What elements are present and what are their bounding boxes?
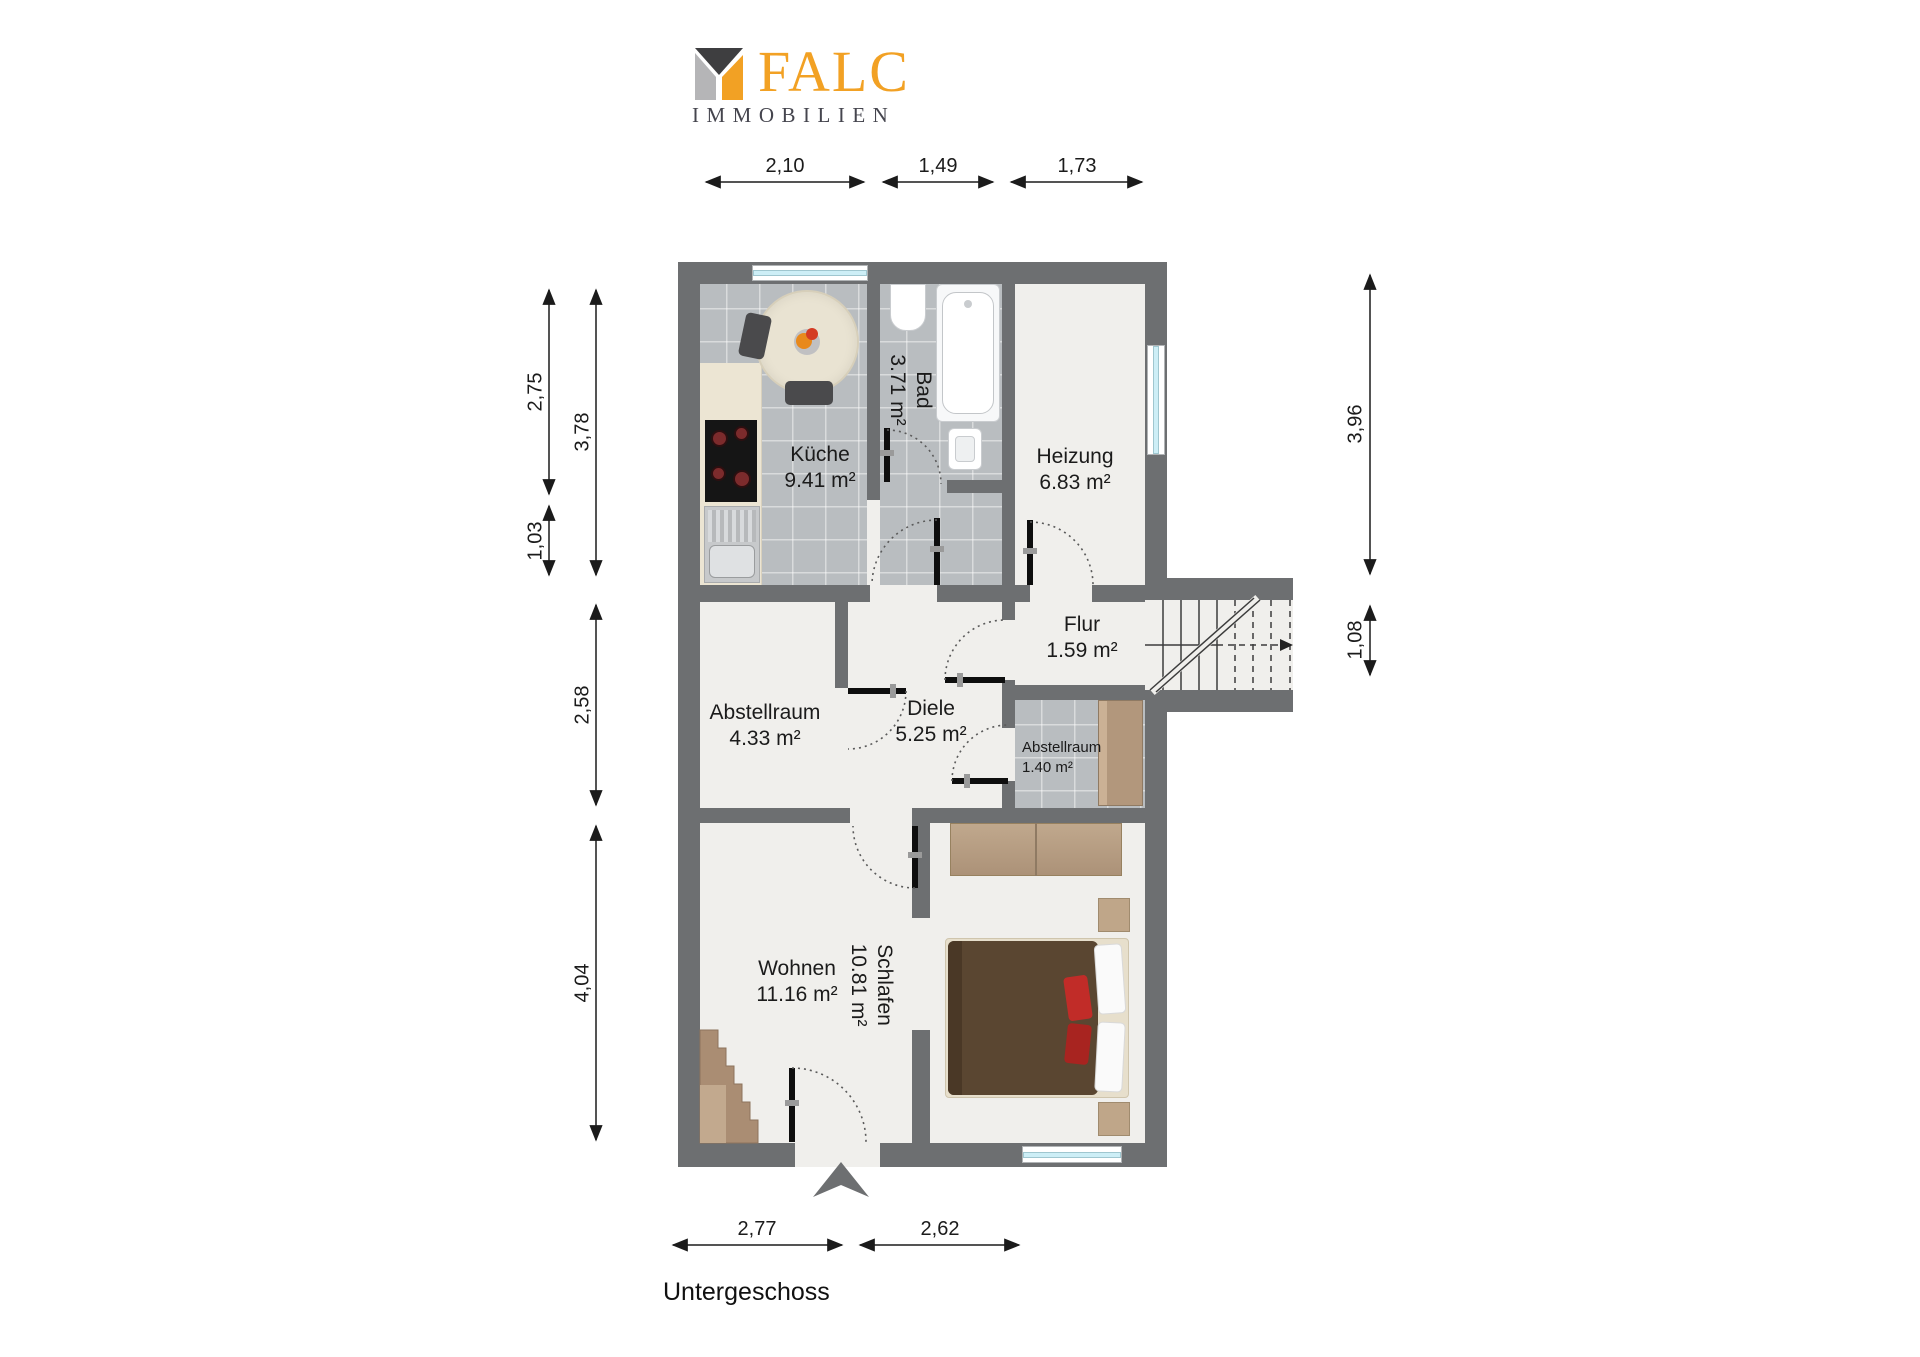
room-name: Diele — [895, 696, 966, 722]
room-label-schlafen: Schlafen 10.81 m² — [845, 944, 897, 1027]
room-label-heizung: Heizung 6.83 m² — [1036, 444, 1113, 496]
dim-left-404: 4,04 — [572, 964, 595, 1003]
red-accent-pillow — [1064, 1023, 1092, 1065]
dim-left-378: 3,78 — [572, 413, 595, 452]
dim-right-108: 1,08 — [1345, 621, 1368, 660]
room-label-abstellraum: Abstellraum 4.33 m² — [710, 700, 821, 752]
wall-mid-band-left — [678, 808, 850, 823]
room-label-kueche: Küche 9.41 m² — [784, 442, 855, 494]
floor-title: Untergeschoss — [663, 1278, 830, 1307]
room-label-wohnen: Wohnen 11.16 m² — [756, 956, 837, 1008]
wall-heizung-bottom-b — [1092, 585, 1145, 602]
wall-exterior-bottom-left — [678, 1143, 795, 1167]
brand-subtitle: IMMOBILIEN — [692, 103, 895, 128]
toilet-seat — [955, 436, 975, 462]
burner — [733, 470, 751, 488]
wall-wohnen-schlafen-bottom — [912, 1030, 930, 1143]
fruit — [806, 328, 818, 340]
window-heizung — [1147, 345, 1165, 455]
wall-abstellraum-klein-top — [1015, 685, 1145, 700]
window-kueche — [752, 265, 868, 281]
wall-bad-heizung — [1002, 284, 1015, 620]
wall-hall-bottom — [937, 585, 1002, 602]
wall-bad-bottom — [947, 480, 1002, 493]
room-area: 3.71 m² — [884, 354, 910, 425]
room-area: 4.33 m² — [710, 726, 821, 752]
storage-wardrobe — [1098, 700, 1143, 806]
room-name: Heizung — [1036, 444, 1113, 470]
logo: FALC IMMOBILIEN — [692, 38, 937, 133]
floor-entry-gap — [795, 1143, 880, 1167]
burner — [711, 466, 726, 481]
bathroom-sink — [890, 284, 926, 331]
room-label-abstellraum-klein: Abstellraum 1.40 m² — [1022, 738, 1101, 778]
dim-left-275: 2,75 — [525, 373, 548, 412]
bed-footboard-throw — [948, 941, 962, 1095]
bedroom-wardrobe-divider — [1035, 823, 1037, 876]
sink-drainboard — [708, 510, 756, 542]
wall-stairwell-bottom — [1145, 690, 1293, 712]
wall-abstellraum-diele — [835, 602, 848, 688]
bedside-stool — [1098, 1102, 1130, 1136]
wall-flur-left — [1002, 680, 1015, 728]
room-name: Abstellraum — [1022, 738, 1101, 758]
room-name: Abstellraum — [710, 700, 821, 726]
dim-left-258: 2,58 — [572, 686, 595, 725]
bathtub-inner — [942, 292, 994, 414]
wall-exterior-right-lower — [1145, 712, 1167, 1167]
wall-mid-band-right — [912, 808, 1145, 823]
room-name: Küche — [784, 442, 855, 468]
room-name: Schlafen — [871, 944, 897, 1027]
bed-pillow — [1094, 1021, 1126, 1092]
room-name: Bad — [910, 354, 936, 425]
window-schlafen — [1022, 1146, 1122, 1163]
room-area: 5.25 m² — [895, 722, 966, 748]
dim-bottom-2: 2,62 — [921, 1218, 960, 1241]
floorplan-page: FALC IMMOBILIEN — [0, 0, 1920, 1357]
room-name: Wohnen — [756, 956, 837, 982]
wall-kueche-bad — [867, 284, 880, 500]
wall-wohnen-schlafen-top — [912, 823, 930, 918]
dim-top-1: 2,10 — [766, 155, 805, 178]
room-area: 11.16 m² — [756, 982, 837, 1008]
wall-kueche-bottom — [700, 585, 870, 602]
room-label-bad: Bad 3.71 m² — [884, 354, 936, 425]
room-area: 9.41 m² — [784, 468, 855, 494]
room-label-diele: Diele 5.25 m² — [895, 696, 966, 748]
wall-heizung-bottom-a — [1015, 585, 1030, 602]
dim-top-3: 1,73 — [1058, 155, 1097, 178]
brand-name: FALC — [758, 38, 910, 105]
falc-logo-icon — [694, 48, 744, 101]
dim-right-396: 3,96 — [1345, 405, 1368, 444]
room-area: 10.81 m² — [845, 944, 871, 1027]
dim-left-103: 1,03 — [525, 522, 548, 561]
dim-top-2: 1,49 — [919, 155, 958, 178]
room-name: Flur — [1046, 612, 1117, 638]
room-area: 1.59 m² — [1046, 638, 1117, 664]
burner — [734, 426, 749, 441]
bedside-stool — [1098, 898, 1130, 932]
room-area: 6.83 m² — [1036, 470, 1113, 496]
wall-flur-left-lower — [1002, 781, 1015, 808]
room-label-flur: Flur 1.59 m² — [1046, 612, 1117, 664]
room-area: 1.40 m² — [1022, 758, 1101, 778]
bed-pillow — [1094, 943, 1127, 1015]
chair — [785, 381, 833, 405]
sink-basin — [709, 545, 755, 578]
dim-bottom-1: 2,77 — [738, 1218, 777, 1241]
floor-stairwell — [1145, 600, 1293, 690]
burner — [711, 430, 728, 447]
wall-stairwell-top — [1145, 578, 1293, 600]
entrance-arrow-icon — [813, 1162, 869, 1197]
wall-exterior-left — [678, 262, 700, 1167]
bathtub-drain — [964, 300, 972, 308]
